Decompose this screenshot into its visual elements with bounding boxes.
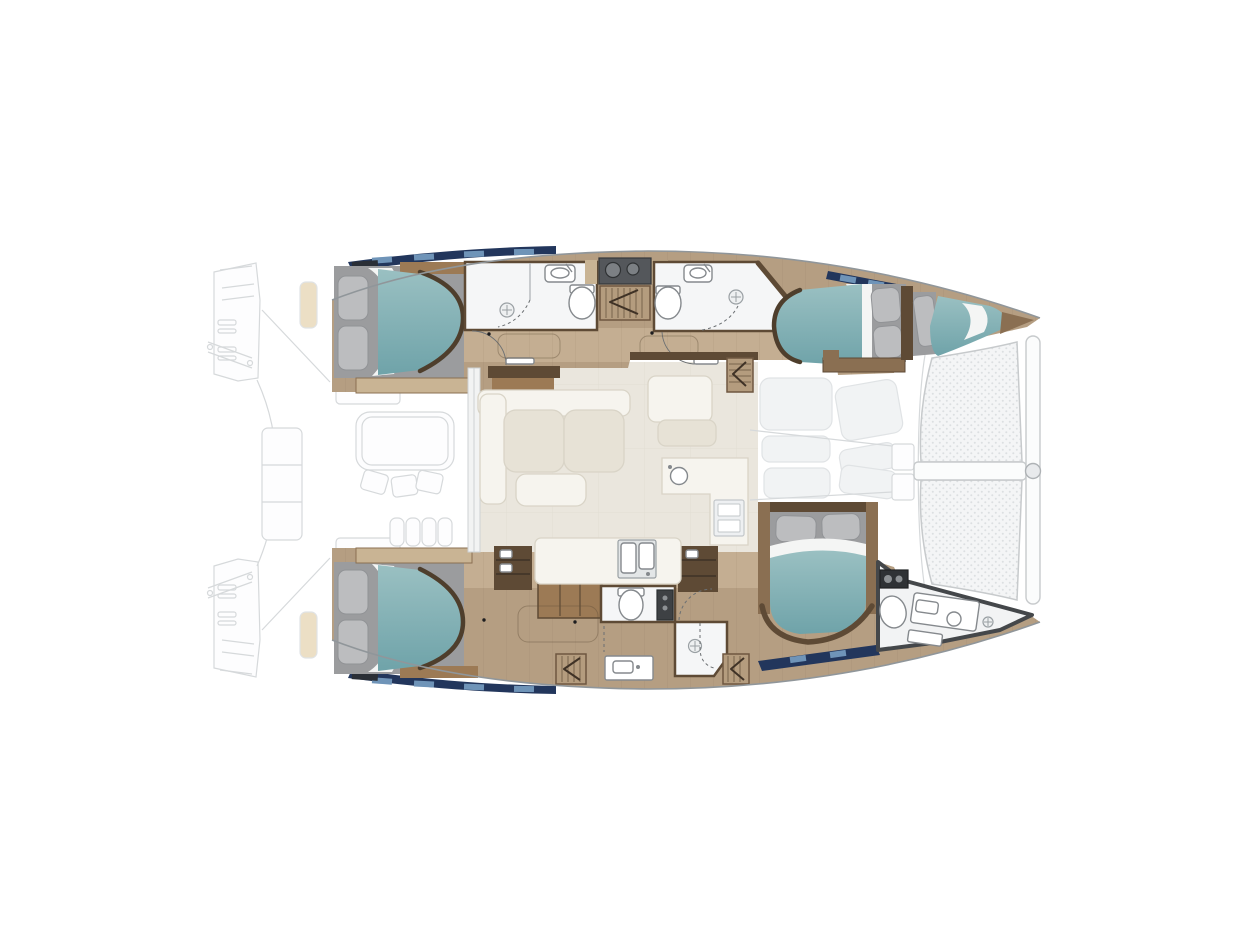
transom-step-cushion: [300, 282, 317, 328]
pillow: [822, 513, 861, 540]
pillow: [871, 287, 902, 323]
washbasin: [915, 600, 938, 615]
bed-frame: [823, 358, 905, 372]
galley-island: [535, 538, 681, 584]
starboard-vanity: [605, 656, 653, 680]
cockpit-chairs: [360, 469, 444, 497]
pillow: [776, 515, 817, 542]
trampoline-crossbar: [914, 462, 1026, 480]
bed-headboard-shelf: [356, 548, 472, 563]
port-fwd-cabin: [774, 284, 913, 372]
starboard-shower-room: [675, 622, 727, 676]
bed-footboard: [356, 378, 472, 393]
ottoman: [516, 474, 586, 506]
pillow: [338, 570, 368, 614]
cleat: [218, 320, 236, 325]
starboard-fwd-cabin: [758, 502, 878, 642]
sink-bowl: [947, 612, 961, 626]
sun-pad: [760, 378, 832, 430]
vanity-unit: [657, 590, 673, 620]
catamaran-floor-plan: [0, 0, 1260, 945]
cockpit-side-bench: [262, 428, 302, 540]
berth-mattress: [770, 550, 866, 634]
washbasin: [613, 661, 633, 673]
cockpit-bench-scallop: [390, 518, 452, 546]
sofa-cushion: [564, 410, 624, 472]
starboard-aft-cabin: [334, 548, 478, 678]
toilet: [655, 287, 681, 319]
anchor-locker: [892, 444, 914, 470]
salon-lounge-seat: [648, 376, 716, 446]
port-fwd-stairs: [727, 358, 753, 392]
toilet: [619, 590, 643, 620]
bow-trampolines: [914, 336, 1041, 604]
trampoline-net-top: [920, 342, 1022, 462]
pillow: [873, 325, 904, 359]
door-leaf: [506, 358, 534, 364]
pillow: [338, 326, 368, 370]
forestay-fitting: [1026, 464, 1041, 479]
starboard-steps-aft: [556, 654, 586, 684]
sofa-cushion: [504, 410, 564, 472]
pillow: [338, 620, 368, 664]
shower-drain: [500, 303, 514, 317]
pillow: [338, 276, 368, 320]
toilet: [569, 287, 595, 319]
port-aft-cabin: [334, 262, 478, 393]
tv-cabinet: [488, 366, 560, 378]
trampoline-net-bottom: [920, 480, 1022, 600]
starboard-steps-fwd: [723, 654, 749, 684]
shower-drain: [729, 290, 743, 304]
starboard-transom-platform: [214, 559, 260, 677]
galley-sink: [671, 468, 688, 485]
